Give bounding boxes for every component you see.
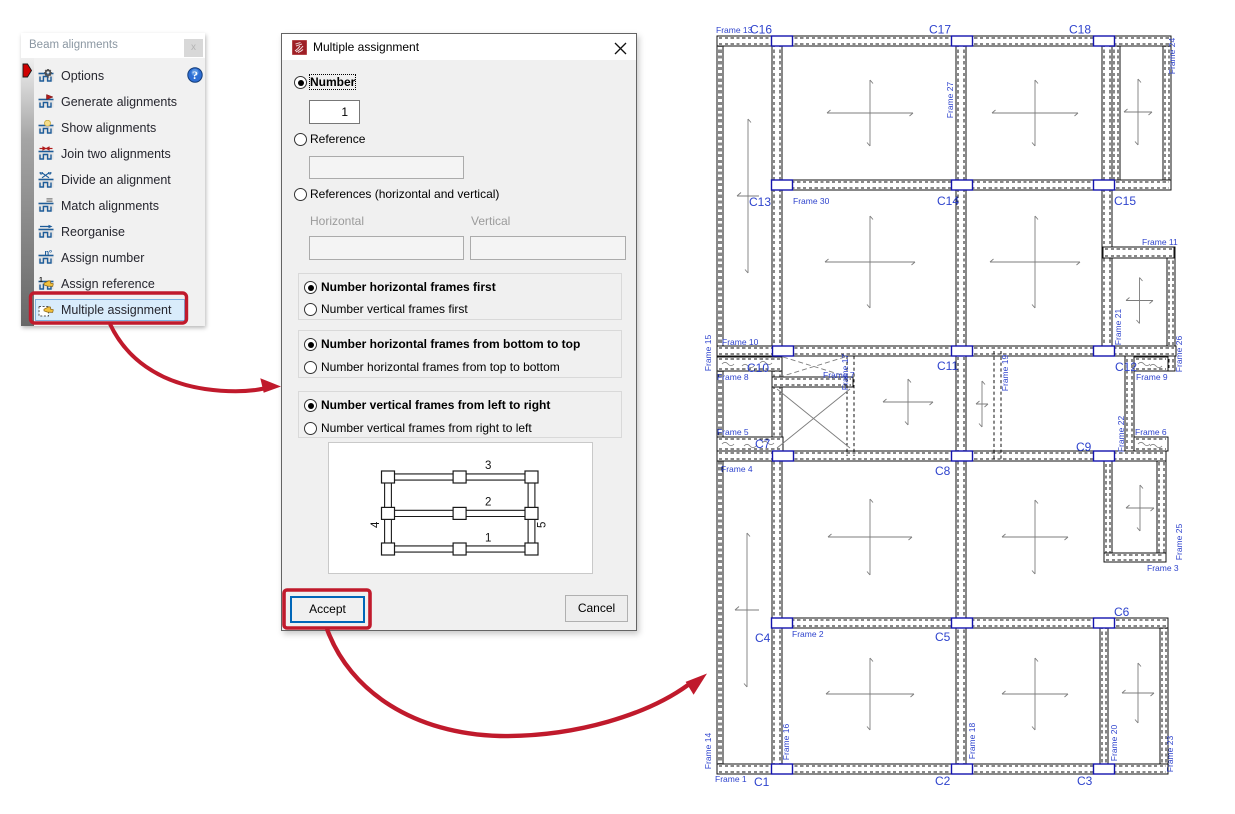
svg-text:1: 1 [485,533,491,545]
svg-text:1: 1 [39,277,43,284]
svg-text:C9: C9 [1076,440,1092,454]
svg-text:C5: C5 [935,630,951,644]
svg-text:2: 2 [485,497,491,509]
svg-text:C2: C2 [935,774,951,788]
svg-text:Frame 22: Frame 22 [1116,416,1126,453]
svg-text:C7: C7 [755,437,771,451]
svg-text:Frame 3: Frame 3 [1147,563,1179,573]
svg-text:Frame 13: Frame 13 [716,25,753,35]
svg-text:Frame 10: Frame 10 [722,337,759,347]
svg-text:C16: C16 [750,23,772,37]
svg-text:Frame 24: Frame 24 [1167,38,1177,75]
svg-text:C15: C15 [1114,194,1136,208]
svg-text:nº: nº [45,250,53,257]
svg-text:C11: C11 [937,359,958,373]
svg-text:Frame 17: Frame 17 [840,354,850,391]
svg-text:3: 3 [485,460,491,472]
svg-text:Frame 27: Frame 27 [945,82,955,119]
svg-text:4: 4 [370,521,382,528]
svg-text:Frame 21: Frame 21 [1113,309,1123,346]
svg-text:Frame 30: Frame 30 [793,196,830,206]
svg-text:Frame 4: Frame 4 [721,464,753,474]
svg-text:C3: C3 [1077,774,1093,788]
svg-text:C17: C17 [929,23,951,37]
svg-text:Frame 1: Frame 1 [715,774,747,784]
svg-text:5: 5 [537,522,549,528]
svg-text:Frame 19: Frame 19 [1000,355,1010,392]
svg-text:C8: C8 [935,464,951,478]
svg-text:C10: C10 [747,361,769,375]
svg-text:?: ? [192,68,198,82]
svg-text:Frame 18: Frame 18 [967,723,977,760]
svg-text:Frame 7: Frame 7 [823,370,855,380]
svg-text:C14: C14 [937,194,959,208]
svg-text:Frame 5: Frame 5 [717,427,749,437]
svg-text:Frame 20: Frame 20 [1109,725,1119,762]
svg-text:Frame 25: Frame 25 [1174,524,1184,561]
svg-text:Frame 16: Frame 16 [781,724,791,761]
svg-text:C12: C12 [1115,360,1137,374]
svg-text:C6: C6 [1114,605,1130,619]
svg-text:C18: C18 [1069,23,1091,37]
svg-text:Frame 11: Frame 11 [1142,237,1178,247]
svg-text:Frame 14: Frame 14 [703,733,713,770]
svg-text:C4: C4 [755,631,771,645]
svg-text:Frame 6: Frame 6 [1135,427,1167,437]
svg-text:Frame 2: Frame 2 [792,629,824,639]
svg-text:Frame 8: Frame 8 [717,372,749,382]
svg-text:C13: C13 [749,195,771,209]
svg-text:Frame 23: Frame 23 [1165,736,1175,773]
svg-text:Frame 9: Frame 9 [1136,372,1168,382]
svg-text:C1: C1 [754,775,770,789]
svg-text:Frame 15: Frame 15 [703,335,713,372]
svg-text:Frame 26: Frame 26 [1174,336,1184,373]
